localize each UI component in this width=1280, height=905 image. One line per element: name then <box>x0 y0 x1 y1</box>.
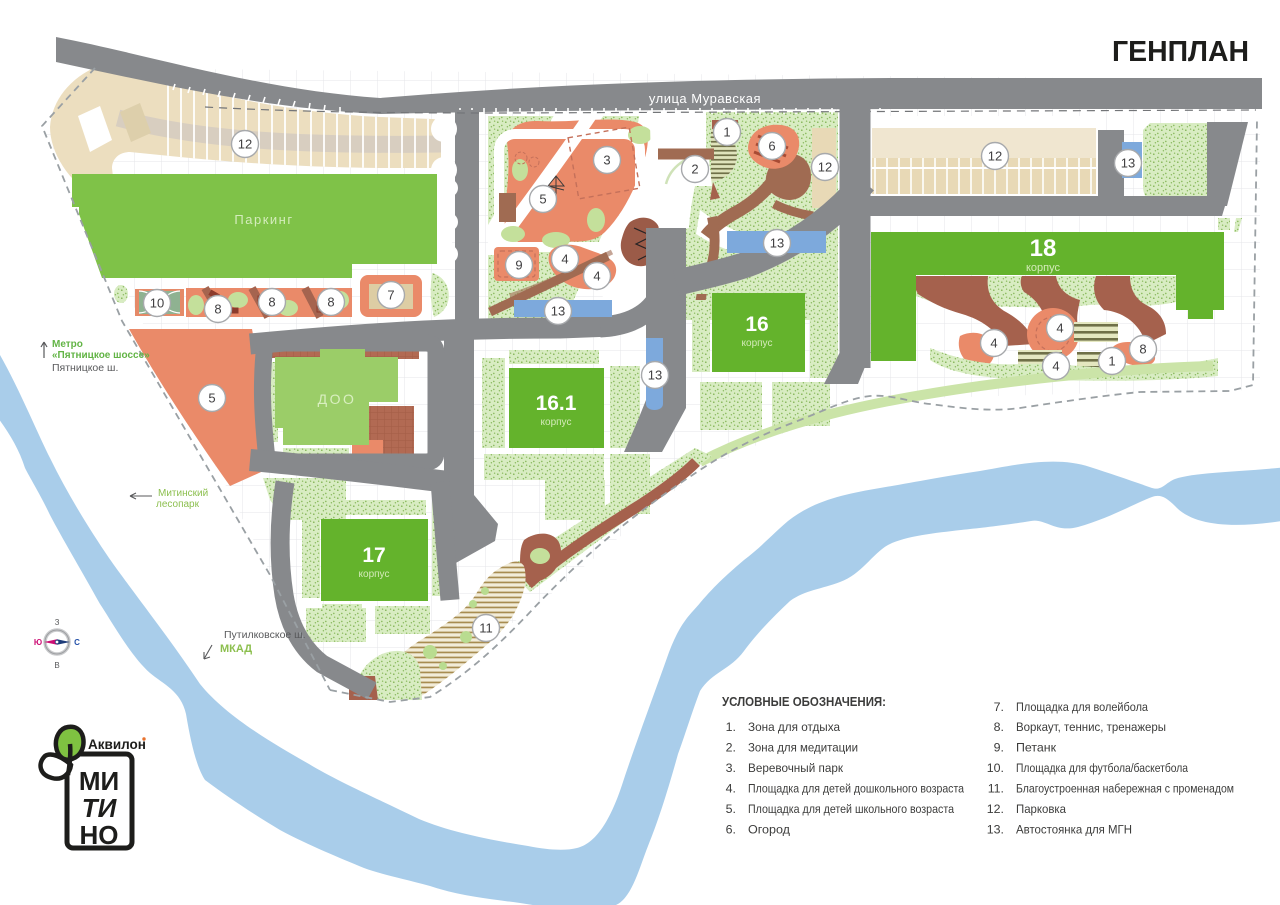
svg-text:корпус: корпус <box>541 417 572 428</box>
svg-text:В: В <box>54 661 59 670</box>
svg-text:4: 4 <box>990 336 997 351</box>
svg-text:16: 16 <box>745 313 768 336</box>
svg-text:1.: 1. <box>726 720 736 734</box>
svg-text:3.: 3. <box>726 761 736 775</box>
svg-text:Петанк: Петанк <box>1016 741 1057 755</box>
svg-text:Парковка: Парковка <box>1016 802 1066 816</box>
svg-text:10.: 10. <box>987 761 1004 775</box>
svg-text:УСЛОВНЫЕ ОБОЗНАЧЕНИЯ:: УСЛОВНЫЕ ОБОЗНАЧЕНИЯ: <box>722 694 886 709</box>
svg-text:корпус: корпус <box>742 338 773 349</box>
svg-text:4: 4 <box>1052 359 1059 374</box>
svg-text:8: 8 <box>268 295 275 310</box>
svg-text:ТИ: ТИ <box>82 793 118 823</box>
svg-text:МИ: МИ <box>79 766 119 796</box>
svg-text:4: 4 <box>593 269 600 284</box>
svg-text:С: С <box>74 638 80 647</box>
svg-text:12: 12 <box>238 137 252 152</box>
svg-text:8: 8 <box>214 302 221 317</box>
svg-text:13: 13 <box>648 368 662 383</box>
svg-text:17: 17 <box>362 544 385 567</box>
svg-text:5: 5 <box>539 192 546 207</box>
svg-text:Митинский: Митинский <box>158 488 208 499</box>
svg-text:Пятницкое ш.: Пятницкое ш. <box>52 362 118 374</box>
svg-text:«Пятницкое шоссе»: «Пятницкое шоссе» <box>52 350 150 361</box>
svg-text:Огород: Огород <box>748 823 791 837</box>
svg-text:4: 4 <box>1056 321 1063 336</box>
svg-text:Паркинг: Паркинг <box>234 212 293 227</box>
svg-text:Площадка для волейбола: Площадка для волейбола <box>1016 700 1148 714</box>
svg-text:12: 12 <box>988 149 1002 164</box>
svg-text:13.: 13. <box>987 823 1004 837</box>
svg-text:11.: 11. <box>988 782 1004 796</box>
svg-text:Площадка для детей школьного в: Площадка для детей школьного возраста <box>748 802 954 816</box>
svg-text:2.: 2. <box>726 741 736 755</box>
svg-text:11: 11 <box>479 621 493 636</box>
svg-text:МКАД: МКАД <box>220 643 252 655</box>
svg-text:8: 8 <box>1139 342 1146 357</box>
svg-text:16.1: 16.1 <box>536 392 577 415</box>
svg-text:13: 13 <box>1121 156 1135 171</box>
svg-text:Площадка для детей дошкольного: Площадка для детей дошкольного возраста <box>748 782 964 796</box>
svg-text:4.: 4. <box>726 782 736 796</box>
svg-text:12: 12 <box>818 160 832 175</box>
svg-text:2: 2 <box>691 162 698 177</box>
svg-text:ДОО: ДОО <box>318 391 357 407</box>
svg-text:5: 5 <box>208 391 215 406</box>
svg-text:Зона для медитации: Зона для медитации <box>748 741 858 755</box>
svg-text:3: 3 <box>603 153 610 168</box>
svg-text:Воркаут, теннис, тренажеры: Воркаут, теннис, тренажеры <box>1016 720 1166 734</box>
svg-text:4: 4 <box>561 252 568 267</box>
svg-text:Веревочный парк: Веревочный парк <box>748 761 844 775</box>
svg-text:7: 7 <box>387 288 394 303</box>
svg-text:З: З <box>55 618 60 627</box>
svg-text:лесопарк: лесопарк <box>156 499 200 510</box>
svg-text:корпус: корпус <box>1026 262 1061 274</box>
svg-text:8: 8 <box>327 295 334 310</box>
svg-text:13: 13 <box>770 236 784 251</box>
svg-text:Благоустроенная набережная с п: Благоустроенная набережная с променадом <box>1016 782 1234 796</box>
svg-text:Аквилон: Аквилон <box>88 737 146 752</box>
svg-text:ГЕНПЛАН: ГЕНПЛАН <box>1112 36 1249 68</box>
svg-text:6.: 6. <box>726 823 736 837</box>
svg-text:1: 1 <box>723 125 730 140</box>
svg-text:9: 9 <box>515 258 522 273</box>
svg-text:улица Муравская: улица Муравская <box>649 91 761 106</box>
svg-text:8.: 8. <box>994 720 1004 734</box>
svg-text:6: 6 <box>768 139 775 154</box>
svg-text:Метро: Метро <box>52 339 83 350</box>
svg-text:Путилковское ш.: Путилковское ш. <box>224 629 306 641</box>
svg-text:Автостоянка для МГН: Автостоянка для МГН <box>1016 823 1132 837</box>
svg-text:корпус: корпус <box>359 569 390 580</box>
svg-text:9.: 9. <box>994 741 1004 755</box>
svg-text:Ю: Ю <box>34 638 42 647</box>
svg-text:НО: НО <box>80 820 119 850</box>
svg-text:10: 10 <box>150 296 164 311</box>
svg-text:13: 13 <box>551 304 565 319</box>
svg-text:1: 1 <box>1108 354 1115 369</box>
svg-text:12.: 12. <box>987 802 1004 816</box>
svg-text:Площадка для футбола/баскетбол: Площадка для футбола/баскетбола <box>1016 761 1188 775</box>
svg-text:Зона для отдыха: Зона для отдыха <box>748 720 840 734</box>
svg-text:7.: 7. <box>994 700 1004 714</box>
svg-text:18: 18 <box>1030 235 1057 262</box>
svg-text:5.: 5. <box>726 802 736 816</box>
